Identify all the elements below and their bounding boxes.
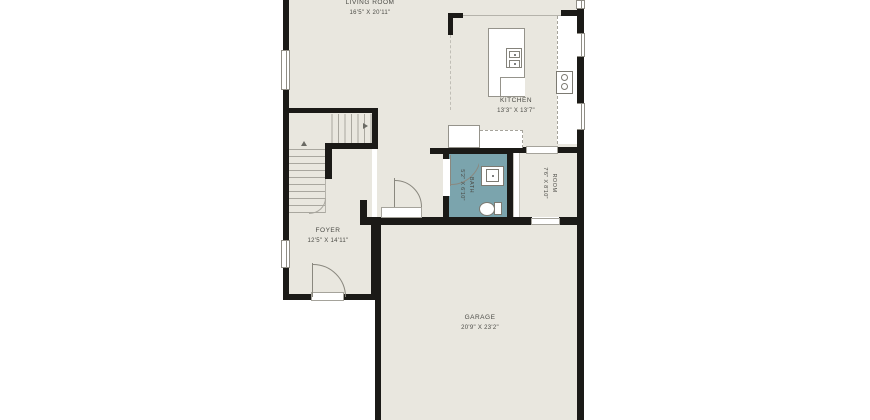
front-door-arc xyxy=(313,263,346,297)
window-living-left xyxy=(281,50,290,90)
stair-direction-arrow xyxy=(363,123,368,129)
stair-direction-arrow-lower xyxy=(301,141,307,146)
vanity-faucet-dot xyxy=(492,175,494,177)
living-room-dims: 16'5" X 20'11" xyxy=(320,8,420,18)
floor-plan: LIVING ROOM 16'5" X 20'11" KITCHEN 13'3"… xyxy=(0,0,870,420)
kitchen-dims: 13'3" X 13'7" xyxy=(466,106,566,116)
mud-room-left-opening xyxy=(513,153,520,217)
room-label-living-room: LIVING ROOM 16'5" X 20'11" xyxy=(320,0,420,18)
garage-left-wall xyxy=(375,217,381,420)
stair-edge-line xyxy=(325,179,326,213)
counter-dashed xyxy=(480,130,523,148)
bath-name: BATH xyxy=(466,163,475,207)
front-door-leaf xyxy=(312,263,313,297)
stove-burner-2 xyxy=(561,83,568,90)
room-label-garage: GARAGE 20'9" X 23'2" xyxy=(430,313,530,333)
kitchen-island-section xyxy=(500,77,525,96)
garage-door-board xyxy=(381,207,422,218)
room-label-foyer: FOYER 12'5" X 14'11" xyxy=(278,226,378,246)
room-dims: 7'6" X 8'10" xyxy=(540,160,549,206)
kitchen-name: KITCHEN xyxy=(466,96,566,106)
mud-room-top-opening xyxy=(526,146,558,154)
bath-door-opening xyxy=(443,159,450,196)
window-kitchen-right-1 xyxy=(576,33,585,57)
base-cabinet xyxy=(448,125,480,148)
toilet-tank xyxy=(494,202,502,215)
stove-burner-1 xyxy=(561,74,568,81)
foyer-name: FOYER xyxy=(278,226,378,236)
kitchen-divider-line xyxy=(463,15,561,16)
exterior-wall-right-3 xyxy=(577,130,584,420)
living-room-name: LIVING ROOM xyxy=(320,0,420,8)
garage-dims: 20'9" X 23'2" xyxy=(430,323,530,333)
sink-faucet-dot-1 xyxy=(514,54,516,56)
exterior-wall-right-2 xyxy=(577,57,584,103)
garage-name: GARAGE xyxy=(430,313,530,323)
kitchen-corner-stub xyxy=(448,13,453,35)
room-name: ROOM xyxy=(549,160,558,206)
foyer-dims: 12'5" X 14'11" xyxy=(278,236,378,246)
stair-mid-wall xyxy=(325,143,332,179)
toilet-bowl xyxy=(479,202,495,216)
garage-door-leaf xyxy=(394,178,395,207)
window-top-right-cut xyxy=(576,0,585,9)
window-kitchen-right-2 xyxy=(576,103,585,130)
garage-top-wall xyxy=(360,217,513,225)
room-label-kitchen: KITCHEN 13'3" X 13'7" xyxy=(466,96,566,116)
garage-door-arc xyxy=(395,178,422,207)
mud-room-bottom-wall-left xyxy=(513,217,532,225)
stairwell-top-wall xyxy=(288,108,377,113)
kitchen-divider-dashed xyxy=(450,35,451,110)
mud-room-bottom-opening xyxy=(531,218,560,225)
bath-dims: 5'2" X 6'10" xyxy=(457,163,466,207)
room-label-room: ROOM 7'6" X 8'10" xyxy=(540,160,558,206)
bath-left-wall-lower xyxy=(443,195,449,225)
stair-landing-wall xyxy=(325,143,377,149)
bath-door-leaf xyxy=(450,155,451,186)
room-label-bath: BATH 5'2" X 6'10" xyxy=(457,163,475,207)
sink-faucet-dot-2 xyxy=(514,63,516,65)
